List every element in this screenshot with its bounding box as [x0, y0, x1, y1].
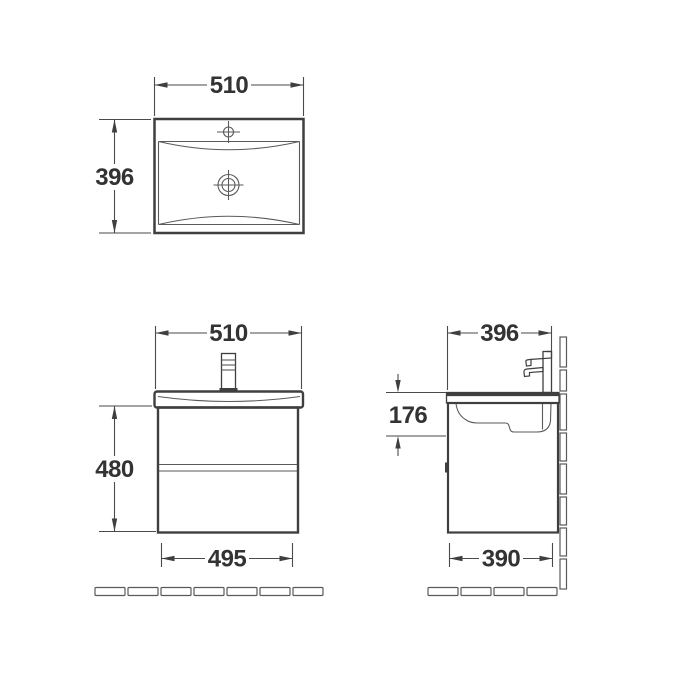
dim-label-top-depth: 396: [95, 164, 134, 191]
dimension-width-front: 510: [156, 320, 302, 389]
dim-label-basin-height: 176: [389, 402, 428, 429]
tap-side: [524, 352, 552, 393]
dim-label-front-height: 480: [95, 456, 134, 483]
top-view-basin-plan: 510 396: [95, 72, 303, 233]
tap-hole-icon: [217, 121, 240, 143]
tap-front: [220, 354, 238, 393]
dimension-depth-side: 396: [448, 320, 552, 390]
drain-icon: [214, 170, 244, 200]
front-view-vanity: 510 480 495: [95, 320, 323, 596]
tap-lever: [526, 352, 552, 367]
bowl-profile: [456, 403, 551, 432]
dim-label-front-width: 510: [209, 320, 248, 347]
wall-hatch: [560, 337, 567, 589]
basin-side-section: [447, 393, 560, 433]
dim-label-side-depth: 396: [480, 320, 519, 347]
floor-hatch-front: [95, 588, 323, 596]
side-view-vanity: 396 176 390: [386, 320, 567, 596]
tap-spout: [524, 368, 543, 377]
drawer-handle-profile: [445, 463, 449, 473]
dim-label-base-width: 495: [208, 546, 247, 573]
dimension-height-front: 480: [95, 406, 156, 532]
dim-label-base-depth: 390: [482, 546, 521, 573]
cabinet-front: [158, 408, 298, 533]
technical-drawing: 510 396: [0, 0, 678, 692]
dim-label-top-width: 510: [210, 72, 249, 99]
dimension-basin-height: 176: [386, 374, 446, 456]
basin-front: [155, 392, 304, 408]
dimension-depth-top: 396: [95, 120, 151, 234]
dimension-width-top: 510: [155, 72, 304, 116]
vanity-dimension-drawing: 510 396: [0, 0, 678, 692]
cabinet-side: [445, 403, 558, 533]
dimension-base-depth: 390: [450, 543, 553, 573]
floor-hatch-side: [428, 588, 557, 596]
dimension-base-width: 495: [162, 543, 293, 573]
